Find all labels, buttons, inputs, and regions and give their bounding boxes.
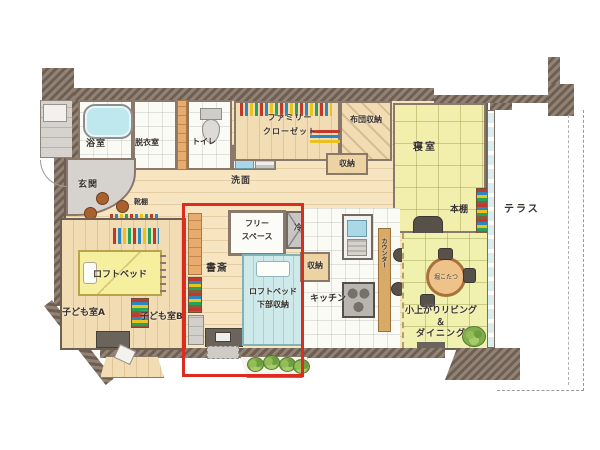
terrace-label: テラス [504, 200, 540, 215]
shoe-shelf-label: 靴棚 [134, 197, 148, 207]
bathroom-label: 浴室 [86, 136, 106, 149]
stepping-stone-icon [116, 200, 129, 213]
kotatsu-label: 堀こたつ [426, 272, 466, 281]
exterior-wall-top-right [434, 95, 550, 103]
terrace-dimension-line [568, 115, 570, 385]
family-closet-label-2: クローゼット [240, 126, 340, 137]
stove-icon [342, 282, 375, 318]
washbasin-label: 洗面 [231, 173, 251, 186]
linen-cabinet [177, 100, 187, 170]
living-label-3: ダイニング [386, 326, 496, 339]
bathtub-icon [83, 104, 133, 139]
bookshelf-label: 本棚 [450, 202, 468, 215]
floor-plan: 浴室 脱衣室 トイレ 洗面 玄関 靴棚 ファミリー クローゼット 布団収納 収納… [0, 0, 600, 450]
kids-room-a-label: 子ども室A [62, 305, 105, 318]
exterior-wall-topleft-block [42, 68, 74, 102]
highlight-rectangle [182, 203, 304, 377]
family-closet-label-1: ファミリー [240, 112, 340, 123]
dressing-room-label: 脱衣室 [135, 137, 159, 148]
exterior-wall-step [490, 103, 512, 110]
bedroom-floor [393, 103, 486, 233]
counter-label: カウンター [379, 238, 388, 268]
bedroom-label: 寝室 [413, 138, 437, 153]
tv-board-icon [417, 342, 445, 348]
futon-storage [340, 101, 392, 161]
hall-storage-label: 収納 [326, 158, 368, 169]
dishwasher-icon [347, 239, 367, 256]
kids-room-b-label: 子ども室B [140, 309, 183, 322]
entrance-door-arc [40, 160, 67, 187]
loft-bed-label: ロフトベッド [78, 267, 162, 280]
terrace-boundary [497, 110, 584, 391]
kitchen-sink-icon [347, 220, 367, 237]
kitchen-label: キッチン [310, 291, 346, 304]
entrance-label: 玄関 [78, 177, 98, 190]
kids-shelf-icon [113, 228, 159, 244]
alcove-unit [43, 104, 67, 122]
dressing-room [133, 100, 177, 170]
stepping-stone-icon [96, 192, 109, 205]
exterior-wall-topright-riser [548, 57, 560, 87]
toilet-label: トイレ [192, 136, 216, 147]
futon-storage-label: 布団収納 [340, 114, 392, 125]
floor-chair-icon [438, 248, 453, 260]
